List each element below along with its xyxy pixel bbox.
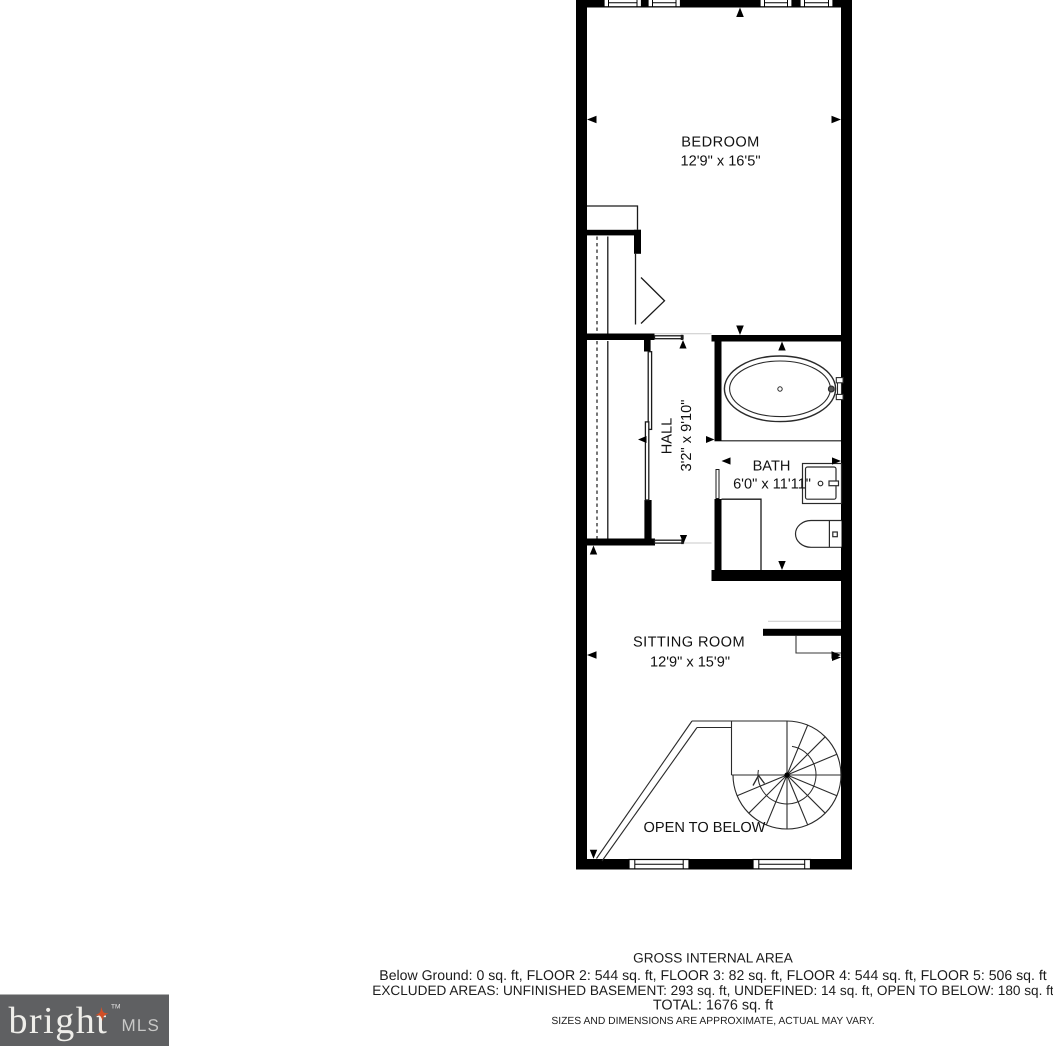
svg-text:BATH: BATH — [753, 459, 791, 475]
svg-text:BEDROOM: BEDROOM — [681, 134, 760, 150]
svg-text:TOTAL: 1676 sq. ft: TOTAL: 1676 sq. ft — [653, 998, 773, 1014]
svg-text:SITTING ROOM: SITTING ROOM — [633, 635, 745, 651]
svg-text:MLS: MLS — [122, 1016, 161, 1035]
svg-text:GROSS INTERNAL AREA: GROSS INTERNAL AREA — [633, 951, 794, 966]
svg-text:12'9" x 16'5": 12'9" x 16'5" — [680, 153, 760, 169]
svg-text:12'9" x 15'9": 12'9" x 15'9" — [650, 655, 730, 671]
svg-text:Below Ground: 0 sq. ft, FLOOR: Below Ground: 0 sq. ft, FLOOR 2: 544 sq.… — [379, 967, 1046, 983]
svg-text:TM: TM — [111, 1004, 120, 1011]
svg-text:SIZES AND DIMENSIONS ARE APPRO: SIZES AND DIMENSIONS ARE APPROXIMATE, AC… — [551, 1016, 874, 1027]
svg-text:OPEN TO BELOW: OPEN TO BELOW — [644, 820, 766, 836]
svg-text:EXCLUDED AREAS: UNFINISHED BAS: EXCLUDED AREAS: UNFINISHED BASEMENT: 293… — [372, 983, 1053, 998]
svg-text:6'0" x 11'11": 6'0" x 11'11" — [733, 477, 811, 493]
svg-text:3'2" x 9'10": 3'2" x 9'10" — [679, 400, 695, 472]
svg-text:bright: bright — [9, 1000, 109, 1042]
svg-text:HALL: HALL — [660, 418, 676, 455]
